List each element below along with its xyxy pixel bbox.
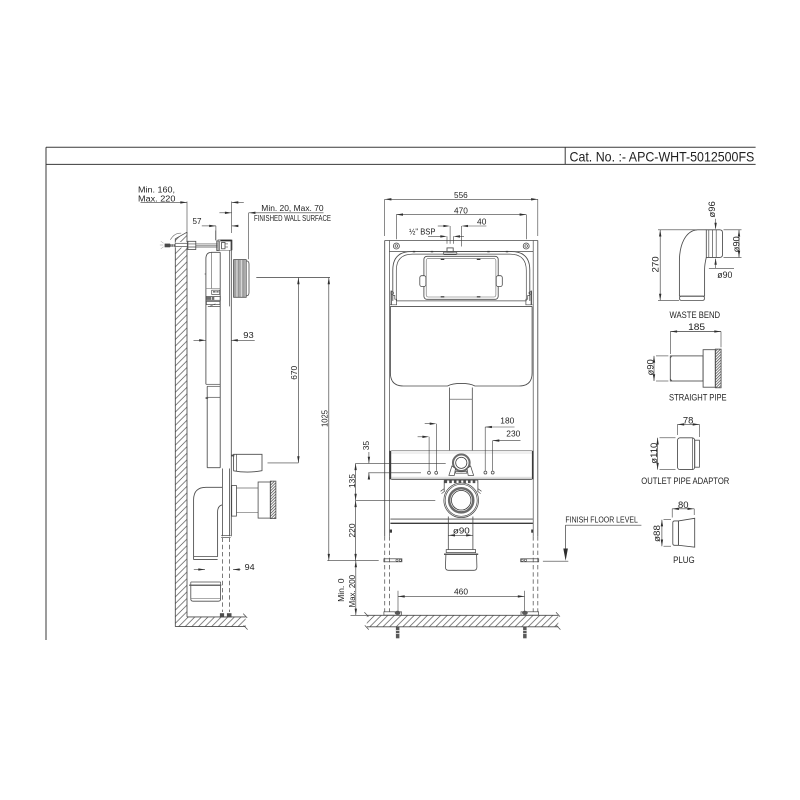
svg-text:135: 135 [347, 474, 357, 488]
svg-text:ø110: ø110 [648, 443, 659, 464]
svg-text:1025: 1025 [320, 410, 330, 427]
svg-text:230: 230 [506, 429, 520, 439]
svg-text:40: 40 [477, 217, 487, 227]
svg-text:Max. 200: Max. 200 [347, 575, 357, 608]
svg-text:FINISHED WALL SURFACE: FINISHED WALL SURFACE [254, 214, 331, 223]
svg-text:57: 57 [193, 216, 202, 226]
svg-text:ø96: ø96 [706, 201, 717, 217]
svg-text:Min. 20, Max. 70: Min. 20, Max. 70 [261, 203, 324, 213]
svg-text:½" BSP: ½" BSP [409, 227, 436, 236]
svg-text:93: 93 [243, 330, 254, 340]
svg-text:ø90: ø90 [717, 269, 732, 280]
svg-text:80: 80 [678, 499, 689, 510]
svg-text:Min. 0: Min. 0 [336, 578, 346, 602]
svg-text:670: 670 [289, 366, 299, 380]
svg-text:470: 470 [454, 205, 468, 215]
svg-text:WASTE BEND: WASTE BEND [670, 310, 721, 320]
svg-text:180: 180 [500, 415, 514, 425]
svg-text:ø90: ø90 [453, 525, 470, 535]
svg-text:PLUG: PLUG [673, 554, 695, 565]
svg-text:ø88: ø88 [651, 525, 662, 542]
svg-text:ø90: ø90 [644, 359, 655, 375]
svg-text:OUTLET PIPE ADAPTOR: OUTLET PIPE ADAPTOR [641, 475, 729, 486]
svg-text:270: 270 [649, 256, 660, 272]
svg-text:220: 220 [347, 523, 357, 537]
svg-text:556: 556 [454, 190, 468, 200]
svg-text:Cat. No. :- APC-WHT-5012500FS: Cat. No. :- APC-WHT-5012500FS [570, 148, 755, 164]
svg-text:460: 460 [454, 587, 468, 597]
svg-text:ø90: ø90 [730, 236, 741, 252]
svg-text:FINISH FLOOR LEVEL: FINISH FLOOR LEVEL [565, 516, 638, 525]
svg-text:94: 94 [245, 562, 255, 572]
svg-text:78: 78 [683, 414, 694, 425]
svg-text:35: 35 [361, 441, 371, 451]
svg-text:STRAIGHT PIPE: STRAIGHT PIPE [669, 392, 727, 402]
svg-text:185: 185 [688, 321, 705, 332]
